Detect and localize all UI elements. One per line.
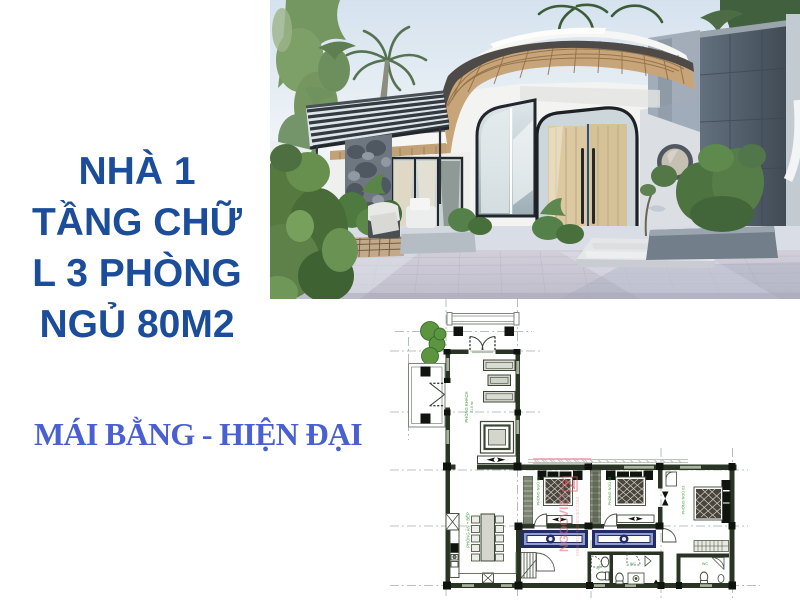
svg-text:21.6 m²: 21.6 m² — [470, 400, 474, 412]
svg-text:WC: WC — [630, 562, 636, 566]
svg-text:KIENTRUCNGOCVIET.COM: KIENTRUCNGOCVIET.COM — [575, 497, 580, 556]
svg-text:WC: WC — [702, 562, 708, 566]
svg-text:PHÒNG NGỦ 03: PHÒNG NGỦ 03 — [681, 486, 686, 515]
svg-text:NGOCVIET: NGOCVIET — [559, 492, 571, 552]
svg-text:PHÒNG NGỦ 02: PHÒNG NGỦ 02 — [607, 477, 612, 506]
svg-text:PHÒNG ĂN + BẾP: PHÒNG ĂN + BẾP — [466, 512, 471, 548]
svg-text:PHÒNG KHÁCH: PHÒNG KHÁCH — [464, 391, 469, 422]
svg-text:PHÒNG NGỦ 01: PHÒNG NGỦ 01 — [536, 477, 541, 506]
